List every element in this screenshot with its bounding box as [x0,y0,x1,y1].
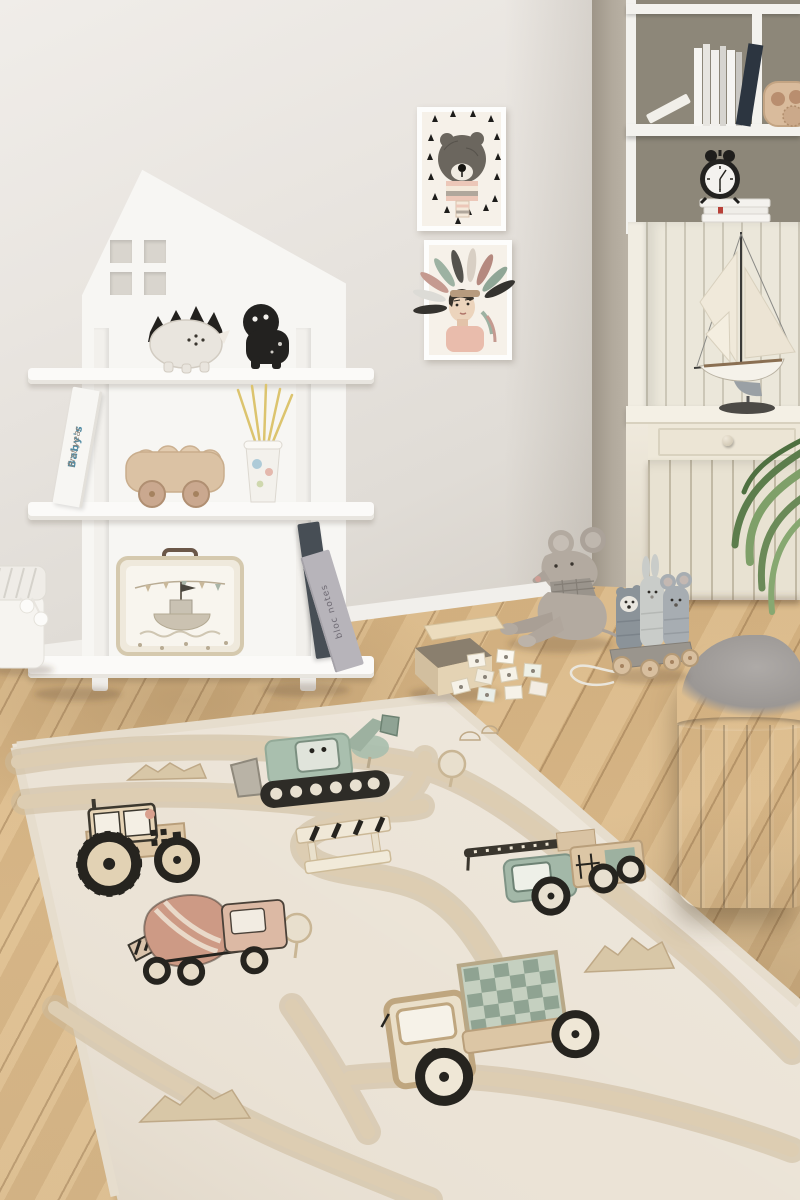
plant-leaves [735,440,800,612]
straw-cup [238,385,292,502]
dinosaur-toy [148,306,230,373]
book-stack [700,199,770,222]
pull-toy-mouse [660,572,692,648]
headdress-print [412,248,517,352]
fabric-basket [0,566,48,668]
bear-print [427,110,501,224]
photo-kids-room: Baby's first year bloc notes [0,0,800,1200]
pull-toy-rabbit [640,554,664,648]
toy-suitcase [118,550,242,654]
bookcase-books [646,43,764,126]
alarm-clock [700,150,770,222]
wooden-car-toy [126,446,224,507]
hippo-toy [243,304,289,369]
pull-toy-bear [616,585,643,652]
scene-objects [0,0,800,1200]
mouse-plush [500,527,630,647]
wooden-radio-toy [764,82,800,126]
sailboat-model [694,232,795,414]
